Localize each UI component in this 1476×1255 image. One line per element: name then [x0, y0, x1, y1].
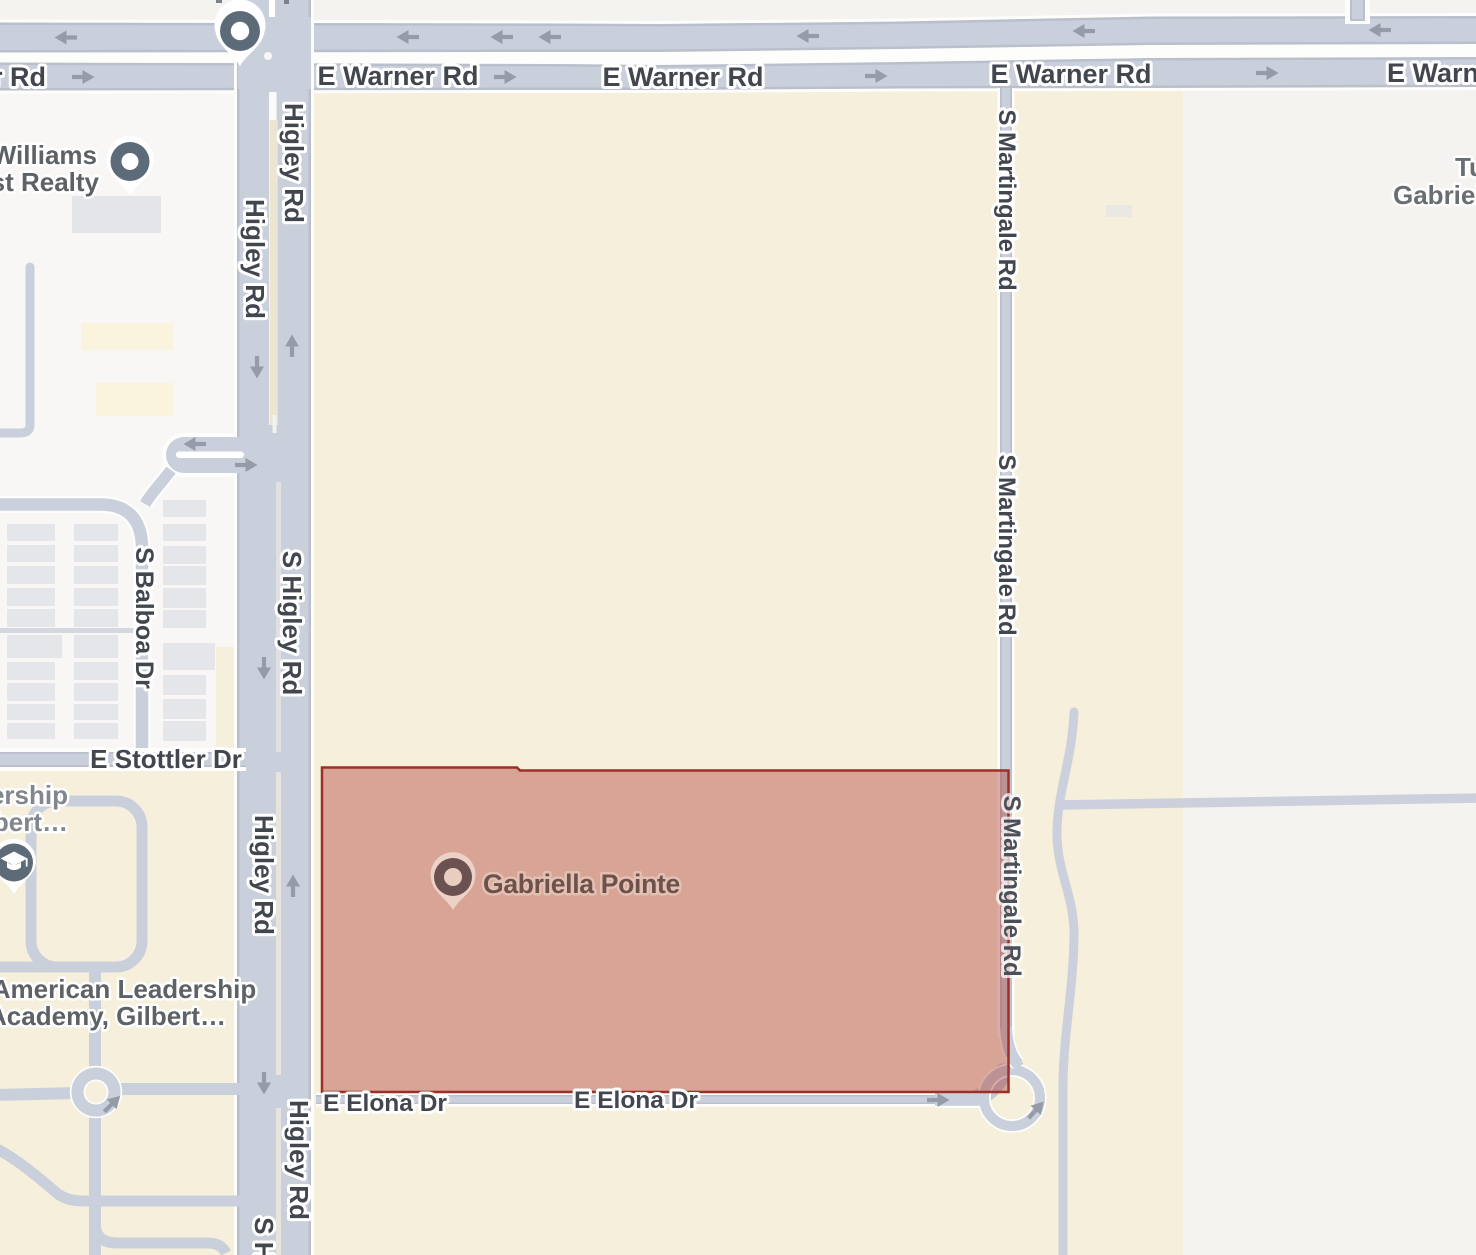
svg-text:E Warner Rd: E Warner Rd	[1387, 58, 1476, 88]
svg-text:S Martingale Rd: S Martingale Rd	[993, 454, 1020, 635]
svg-text:S Higley Rd: S Higley Rd	[277, 551, 307, 695]
svg-text:Higley Rd: Higley Rd	[279, 103, 309, 223]
svg-text:Williams: Williams	[0, 140, 97, 170]
svg-text:E Elona Dr: E Elona Dr	[574, 1087, 698, 1114]
svg-text:S Martingale Rd: S Martingale Rd	[993, 109, 1020, 290]
svg-text:S Balboa Dr: S Balboa Dr	[130, 547, 158, 689]
svg-text:E Warner Rd: E Warner Rd	[602, 62, 763, 92]
svg-text:st Realty: st Realty	[0, 167, 100, 197]
svg-text:E Warner Rd: E Warner Rd	[990, 59, 1151, 89]
svg-text:bert…: bert…	[0, 807, 68, 837]
svg-text:E Warner Rd: E Warner Rd	[317, 61, 478, 91]
svg-text:Higley Rd: Higley Rd	[240, 199, 270, 319]
svg-text:S Higl: S Higl	[249, 1217, 279, 1255]
svg-text:Higley Rd: Higley Rd	[249, 815, 279, 935]
svg-text:American Leadership: American Leadership	[0, 974, 256, 1004]
svg-text:ership: ership	[0, 780, 68, 810]
svg-text:S Martingale Rd: S Martingale Rd	[998, 795, 1025, 976]
svg-text:E Elona Dr: E Elona Dr	[323, 1090, 447, 1117]
svg-text:Higley Rd: Higley Rd	[284, 1100, 314, 1220]
svg-text:Tu: Tu	[1455, 152, 1476, 182]
svg-text:Gabriella Pointe: Gabriella Pointe	[483, 869, 680, 899]
svg-text:E Stottler Dr: E Stottler Dr	[90, 744, 242, 774]
svg-text:Gabriella: Gabriella	[1393, 180, 1476, 210]
svg-text:Academy, Gilbert…: Academy, Gilbert…	[0, 1001, 226, 1031]
svg-text:r Rd: r Rd	[0, 62, 46, 92]
